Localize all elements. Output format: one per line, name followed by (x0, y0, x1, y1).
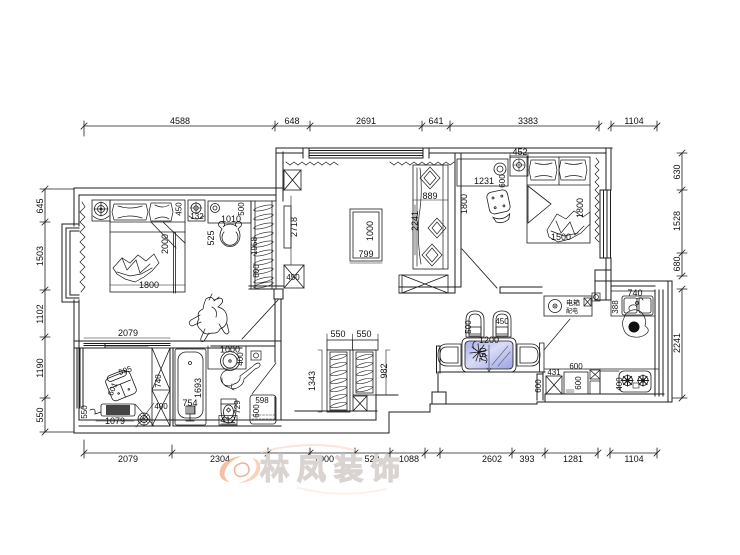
svg-text:645: 645 (35, 198, 45, 213)
svg-text:630: 630 (672, 164, 682, 179)
svg-text:1800: 1800 (459, 194, 469, 214)
svg-text:450: 450 (495, 317, 509, 326)
svg-text:600: 600 (498, 174, 507, 188)
svg-text:400: 400 (236, 352, 245, 366)
svg-text:595: 595 (117, 364, 133, 377)
svg-text:1281: 1281 (563, 454, 583, 464)
svg-text:600: 600 (252, 264, 261, 278)
svg-text:2079: 2079 (118, 454, 138, 464)
svg-text:550: 550 (356, 329, 371, 339)
svg-text:412: 412 (220, 415, 235, 425)
svg-text:601: 601 (106, 381, 120, 397)
svg-text:2241: 2241 (672, 333, 682, 353)
svg-text:2718: 2718 (289, 217, 299, 237)
svg-text:450: 450 (175, 202, 184, 216)
svg-text:600: 600 (574, 376, 583, 390)
svg-text:132: 132 (190, 212, 204, 221)
svg-text:388: 388 (611, 300, 620, 314)
svg-text:550: 550 (80, 405, 89, 419)
svg-text:598: 598 (255, 396, 269, 405)
svg-text:648: 648 (284, 116, 299, 126)
svg-text:1800: 1800 (139, 280, 159, 290)
svg-text:1190: 1190 (35, 358, 45, 377)
svg-text:740: 740 (627, 288, 642, 298)
svg-text:400: 400 (154, 402, 168, 411)
svg-text:1104: 1104 (624, 116, 643, 126)
svg-text:2079: 2079 (118, 328, 138, 338)
svg-text:740: 740 (154, 374, 163, 388)
svg-text:1104: 1104 (624, 454, 643, 464)
svg-text:1000: 1000 (365, 221, 375, 241)
svg-text:750: 750 (478, 347, 488, 362)
svg-text:400: 400 (615, 377, 624, 391)
svg-text:3383: 3383 (518, 116, 538, 126)
svg-text:1079: 1079 (105, 416, 125, 426)
svg-text:配电: 配电 (566, 307, 578, 315)
svg-text:450: 450 (286, 273, 300, 282)
svg-text:550: 550 (330, 329, 345, 339)
svg-text:2691: 2691 (356, 116, 376, 126)
svg-text:889: 889 (422, 191, 437, 201)
svg-text:电箱: 电箱 (566, 298, 580, 307)
svg-text:680: 680 (672, 256, 682, 271)
svg-text:1693: 1693 (193, 378, 203, 398)
svg-text:729: 729 (233, 400, 242, 414)
svg-text:1800: 1800 (575, 198, 585, 218)
svg-text:500: 500 (464, 320, 473, 334)
svg-text:1500: 1500 (551, 232, 571, 242)
svg-text:1343: 1343 (307, 371, 317, 391)
svg-text:2000: 2000 (160, 234, 170, 254)
svg-text:799: 799 (358, 249, 373, 259)
svg-text:550: 550 (35, 407, 45, 422)
svg-text:1200: 1200 (479, 335, 499, 345)
svg-text:393: 393 (519, 454, 534, 464)
svg-text:1958: 1958 (250, 237, 259, 255)
svg-text:1503: 1503 (35, 246, 45, 266)
svg-text:500: 500 (237, 202, 246, 216)
svg-text:754: 754 (182, 398, 197, 408)
svg-text:林凤装饰: 林凤装饰 (260, 453, 408, 486)
svg-text:1102: 1102 (35, 304, 45, 323)
svg-text:1231: 1231 (474, 176, 494, 186)
svg-text:982: 982 (379, 363, 389, 378)
svg-text:452: 452 (512, 147, 527, 157)
svg-text:600: 600 (252, 404, 261, 418)
svg-text:641: 641 (428, 116, 443, 126)
svg-text:600: 600 (534, 379, 543, 393)
svg-text:600: 600 (569, 362, 583, 371)
svg-text:525: 525 (206, 230, 216, 245)
svg-text:2241: 2241 (410, 211, 420, 231)
svg-text:4588: 4588 (170, 116, 190, 126)
svg-text:1528: 1528 (672, 211, 682, 231)
svg-text:2602: 2602 (482, 454, 502, 464)
